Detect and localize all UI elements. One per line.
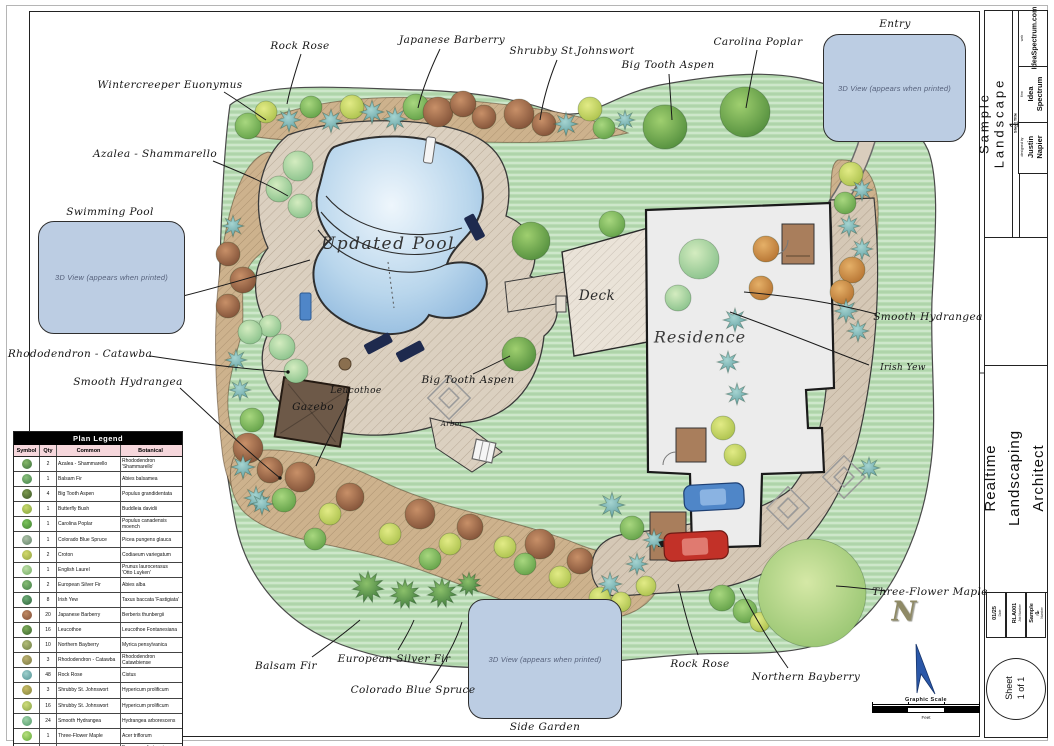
plant-symbol [300,96,322,118]
viewport-placeholder-text: 3D View (appears when printed) [55,273,168,282]
legend-common-name: Shrubby St. Johnswort [57,683,121,697]
plant-symbol [724,444,746,466]
legend-row: 4Big Tooth AspenPopulus grandidentata [14,487,182,502]
plant-symbol-swatch [22,459,32,469]
legend-symbol-cell [14,472,40,486]
web-label: web [1020,35,1024,41]
north-arrow-letter: N [892,597,917,628]
plant-symbol-swatch [22,625,32,635]
legend-rows: 2Azalea - ShammarelloRhododendron 'Shamm… [14,457,182,746]
plant-symbol [679,239,719,279]
legend-common-name: English Laurel [57,563,121,577]
legend-common-name: Rock Rose [57,668,121,682]
plant-symbol [753,236,779,262]
plant-symbol [379,523,401,545]
legend-common-name: Northern Bayberry [57,638,121,652]
legend-common-name: Balsam Fir [57,472,121,486]
label-shrubby-st-johnswort: Shrubby St.Johnswort [509,45,634,57]
legend-qty: 1 [40,472,57,486]
legend-symbol-cell [14,593,40,607]
legend-symbol-cell [14,532,40,546]
legend-botanical-name: Hydrangea arborescens [121,714,180,728]
graphic-scale-bar [872,704,980,713]
plant-symbol [717,351,739,373]
legend-common-name: Japanese Barberry [57,608,121,622]
legend-qty: 2 [40,548,57,562]
label-wintercreeper: Wintercreeper Euonymus [97,79,242,91]
legend-qty: 48 [40,668,57,682]
job-number-label: Job Number [1018,604,1022,621]
legend-title: Plan Legend [14,432,182,445]
graphic-scale-unit: Feet [872,715,980,720]
legend-qty: 8 [40,593,57,607]
plant-symbol [626,553,648,575]
label-swimming-pool: Swimming Pool [66,206,153,218]
plant-symbol-swatch [22,685,32,695]
legend-common-name: Colorado Blue Spruce [57,532,121,546]
plant-symbol [593,117,615,139]
viewport-placeholder-text: 3D View (appears when printed) [488,655,601,664]
plant-symbol-swatch [22,565,32,575]
legend-header: Symbol Qty Common Botanical [14,445,182,457]
label-gazebo: Gazebo [292,401,334,413]
legend-symbol-cell [14,699,40,713]
plant-symbol [830,280,854,304]
legend-row: 1Butterfly BushBuddleia davidii [14,502,182,517]
plant-symbol [502,337,536,371]
legend-botanical-name: Picea pungens glauca [121,532,180,546]
label-japanese-barberry: Japanese Barberry [399,34,505,46]
legend-qty: 10 [40,638,57,652]
legend-symbol-cell [14,563,40,577]
legend-qty: 2 [40,457,57,471]
legend-qty: 24 [40,714,57,728]
label-rock-rose-bottom: Rock Rose [670,658,729,670]
legend-col-qty: Qty [40,445,57,456]
sheet-title-label: Sheet Title [1013,113,1018,133]
legend-row: 2Azalea - ShammarelloRhododendron 'Shamm… [14,457,182,472]
legend-symbol-cell [14,638,40,652]
label-deck: Deck [579,288,615,304]
plant-symbol [272,488,296,512]
plant-symbol [423,97,453,127]
red-car [663,530,728,561]
legend-row: 48Rock RoseCistus [14,668,182,683]
label-side-garden: Side Garden [510,721,581,733]
plant-symbol [231,455,255,479]
legend-common-name: Butterfly Bush [57,502,121,516]
plant-symbol-swatch [22,535,32,545]
legend-symbol-cell [14,623,40,637]
plant-legend: Plan Legend Symbol Qty Common Botanical … [13,431,183,746]
legend-botanical-name: Codiaeum variegatum [121,548,180,562]
legend-symbol-cell [14,668,40,682]
legend-qty: 3 [40,683,57,697]
plant-symbol [269,334,295,360]
legend-botanical-name: Hypericum prolificum [121,683,180,697]
plant-symbol [532,112,556,136]
plant-symbol [283,151,313,181]
legend-col-botanical: Botanical [121,445,180,456]
legend-row: 3Rhododendron - CatawbaRhododendron Cata… [14,653,182,668]
plant-symbol [858,457,880,479]
designed-by-value: Justin Napier [1026,135,1044,158]
legend-botanical-name: Buddleia davidii [121,502,180,516]
legend-qty: 3 [40,653,57,667]
plant-symbol [847,320,869,342]
plant-symbol [599,211,625,237]
legend-qty: 16 [40,699,57,713]
plant-symbol [726,383,748,405]
plant-symbol [229,379,251,401]
legend-symbol-cell [14,487,40,501]
legend-row: 1Carolina PoplarPopulus canadensis moenc… [14,517,182,532]
legend-common-name: Shrubby St. Johnswort [57,699,121,713]
legend-symbol-cell [14,457,40,471]
pool-float [300,293,311,320]
plant-symbol [494,536,516,558]
legend-row: 3Shrubby St. JohnswortHypericum prolific… [14,683,182,698]
plant-symbol-swatch [22,519,32,529]
firm-label: firm [1020,91,1024,97]
legend-common-name: Three-Flower Maple [57,729,121,743]
legend-common-name: Carolina Poplar [57,517,121,531]
plant-symbol [636,576,656,596]
plant-symbol [238,320,262,344]
legend-botanical-name: Taxus baccata 'Fastigiata' [121,593,180,607]
plant-symbol [567,548,593,574]
legend-common-name: Leucothoe [57,623,121,637]
firm-value: Idea Spectrum [1026,77,1044,112]
plant-symbol [643,529,665,551]
plant-symbol [233,433,263,463]
plant-symbol [578,97,602,121]
plant-symbol [336,483,364,511]
plant-symbol [839,257,865,283]
legend-botanical-name: Populus grandidentata [121,487,180,501]
legend-symbol-cell [14,653,40,667]
label-european-silver-fir: European Silver Fir [338,653,451,665]
plant-symbol [319,503,341,525]
legend-botanical-name: Prunus laurocerasus 'Otto Luyken' [121,563,180,577]
plant-symbol [439,533,461,555]
leader-dot [286,370,289,373]
label-smooth-hydrangea-right: Smooth Hydrangea [873,311,983,323]
legend-qty: 2 [40,578,57,592]
label-colorado-blue-spruce: Colorado Blue Spruce [351,684,476,696]
legend-botanical-name: Cistus [121,668,180,682]
legend-qty: 1 [40,517,57,531]
legend-col-symbol: Symbol [14,445,40,456]
plant-symbol [838,215,860,237]
legend-common-name: Rhododendron - Catawba [57,653,121,667]
plant-symbol [554,112,578,136]
plant-symbol [512,222,550,260]
plant-symbol [711,416,735,440]
legend-botanical-name: Abies balsamea [121,472,180,486]
plant-symbol [457,514,483,540]
label-updated-pool: Updated Pool [321,234,455,254]
plant-symbol-swatch [22,670,32,680]
deck-steps [556,296,566,312]
legend-common-name: Irish Yew [57,593,121,607]
legend-symbol-cell [14,548,40,562]
product-name: Realtime Landscaping Architect [979,430,1051,526]
blue-car [683,482,744,511]
legend-row: 1Colorado Blue SprucePicea pungens glauc… [14,532,182,547]
legend-row: 8Irish YewTaxus baccata 'Fastigiata' [14,593,182,608]
plant-symbol [643,105,687,149]
graphic-scale: Graphic Scale Feet [872,697,980,720]
legend-common-name: Smooth Hydrangea [57,714,121,728]
legend-row: 24Smooth HydrangeaHydrangea arborescens [14,714,182,729]
legend-row: 1Balsam FirAbies balsamea [14,472,182,487]
plant-symbol [665,285,691,311]
legend-qty: 1 [40,502,57,516]
plant-symbol [285,462,315,492]
legend-row: 10Northern BayberryMyrica pensylvanica [14,638,182,653]
plant-symbol [340,95,364,119]
plant-symbol [504,99,534,129]
label-big-tooth-aspen-mid: Big Tooth Aspen [422,374,515,386]
legend-symbol-cell [14,729,40,743]
plant-symbol [251,493,273,515]
plant-symbol [839,162,863,186]
plant-symbol [514,553,536,575]
legend-col-common: Common [57,445,121,456]
plant-symbol [277,108,301,132]
plant-symbol [615,110,635,130]
plant-symbol [288,194,312,218]
legend-qty: 20 [40,608,57,622]
plant-symbol [319,109,343,133]
sheet-number-text: Sheet 1 of 1 [1003,676,1027,700]
legend-botanical-name: Myrica pensylvanica [121,638,180,652]
label-smooth-hydrangea-left: Smooth Hydrangea [73,376,183,388]
viewport-pool-3d: 3D View (appears when printed) [38,221,185,334]
legend-botanical-name: Abies alba [121,578,180,592]
plant-symbol-swatch [22,474,32,484]
label-entry: Entry [879,18,911,30]
plant-symbol [851,238,873,260]
plant-symbol [749,276,773,300]
plant-symbol [419,548,441,570]
plant-symbol [216,242,240,266]
legend-symbol-cell [14,578,40,592]
legend-row: 1English LaurelPrunus laurocerasus 'Otto… [14,563,182,578]
graphic-scale-title: Graphic Scale [872,697,980,703]
legend-row: 16LeucothoeLeucothoe Fontanesiana [14,623,182,638]
designed-by-label: designed by [1020,138,1024,157]
rear-stoop [676,428,706,462]
plant-symbol [709,585,735,611]
plant-symbol [620,516,644,540]
label-rock-rose-top: Rock Rose [270,40,329,52]
plant-symbol-swatch [22,610,32,620]
label-three-flower-maple: Three-Flower Maple [872,586,988,598]
label-azalea: Azalea - Shammarello [93,148,217,160]
legend-botanical-name: Berberis thunbergii [121,608,180,622]
legend-common-name: Azalea - Shammarello [57,457,121,471]
plant-symbol [216,294,240,318]
label-irish-yew: Irish Yew [880,363,926,373]
plant-symbol [222,215,244,237]
label-balsam-fir: Balsam Fir [255,660,317,672]
label-carolina-poplar: Carolina Poplar [713,36,802,48]
legend-qty: 1 [40,532,57,546]
legend-botanical-name: Rhododendron Catawbiense [121,653,180,667]
legend-common-name: Big Tooth Aspen [57,487,121,501]
plant-symbol-swatch [22,550,32,560]
plant-symbol [304,528,326,550]
legend-common-name: Croton [57,548,121,562]
legend-botanical-name: Acer triflorum [121,729,180,743]
plant-symbol [472,105,496,129]
legend-row: 2European Silver FirAbies alba [14,578,182,593]
web-value: IdeaSpectrum.com [1032,7,1039,70]
legend-qty: 1 [40,563,57,577]
legend-symbol-cell [14,714,40,728]
plant-symbol-swatch [22,489,32,499]
label-big-tooth-aspen-top: Big Tooth Aspen [622,59,715,71]
landscape-plan-sheet: 3D View (appears when printed) 3D View (… [0,0,1054,746]
viewport-entry-3d: 3D View (appears when printed) [823,34,966,142]
legend-symbol-cell [14,683,40,697]
plant-symbol [834,299,858,323]
plant-symbol [549,566,571,588]
front-porch [782,224,814,264]
legend-row: 1Three-Flower MapleAcer triflorum [14,729,182,744]
plant-symbol [266,176,292,202]
legend-botanical-name: Leucothoe Fontanesiana [121,623,180,637]
plant-symbol-swatch [22,640,32,650]
north-arrow-needle [916,644,935,694]
legend-botanical-name: Populus canadensis moench [121,517,180,531]
patio-table [339,358,351,370]
legend-row: 2CrotonCodiaeum variegatum [14,548,182,563]
legend-common-name: European Silver Fir [57,578,121,592]
plant-symbol [758,539,866,647]
plant-symbol-swatch [22,701,32,711]
plant-symbol [834,192,856,214]
plant-symbol-swatch [22,655,32,665]
plant-symbol [720,87,770,137]
leader-dot [278,476,281,479]
legend-symbol-cell [14,608,40,622]
label-residence: Residence [654,328,746,347]
plant-symbol-swatch [22,504,32,514]
date-label: Date [998,610,1002,617]
legend-qty: 4 [40,487,57,501]
file-number-label: File Number [1036,606,1044,620]
plant-symbol [240,408,264,432]
legend-symbol-cell [14,517,40,531]
label-northern-bayberry: Northern Bayberry [752,671,860,683]
plant-symbol [405,499,435,529]
label-leucothoe: Leucothoe [330,386,381,396]
arbor-structure [472,439,496,463]
legend-qty: 16 [40,623,57,637]
legend-botanical-name: Rhododendron 'Shammarello' [121,457,180,471]
plant-symbol [360,100,384,124]
plant-symbol [259,315,281,337]
plant-symbol-swatch [22,580,32,590]
label-arbor: Arbor [441,420,463,428]
plant-symbol [599,492,625,518]
viewport-garden-3d: 3D View (appears when printed) [468,599,622,719]
legend-row: 16Shrubby St. JohnswortHypericum prolifi… [14,699,182,714]
viewport-placeholder-text: 3D View (appears when printed) [838,84,951,93]
label-rhododendron: Rhododendron - Catawba [8,348,152,360]
plant-symbol-swatch [22,731,32,741]
legend-symbol-cell [14,502,40,516]
legend-botanical-name: Hypericum prolificum [121,699,180,713]
plant-symbol [450,91,476,117]
legend-qty: 1 [40,729,57,743]
legend-row: 20Japanese BarberryBerberis thunbergii [14,608,182,623]
plant-symbol-swatch [22,716,32,726]
plant-symbol-swatch [22,595,32,605]
